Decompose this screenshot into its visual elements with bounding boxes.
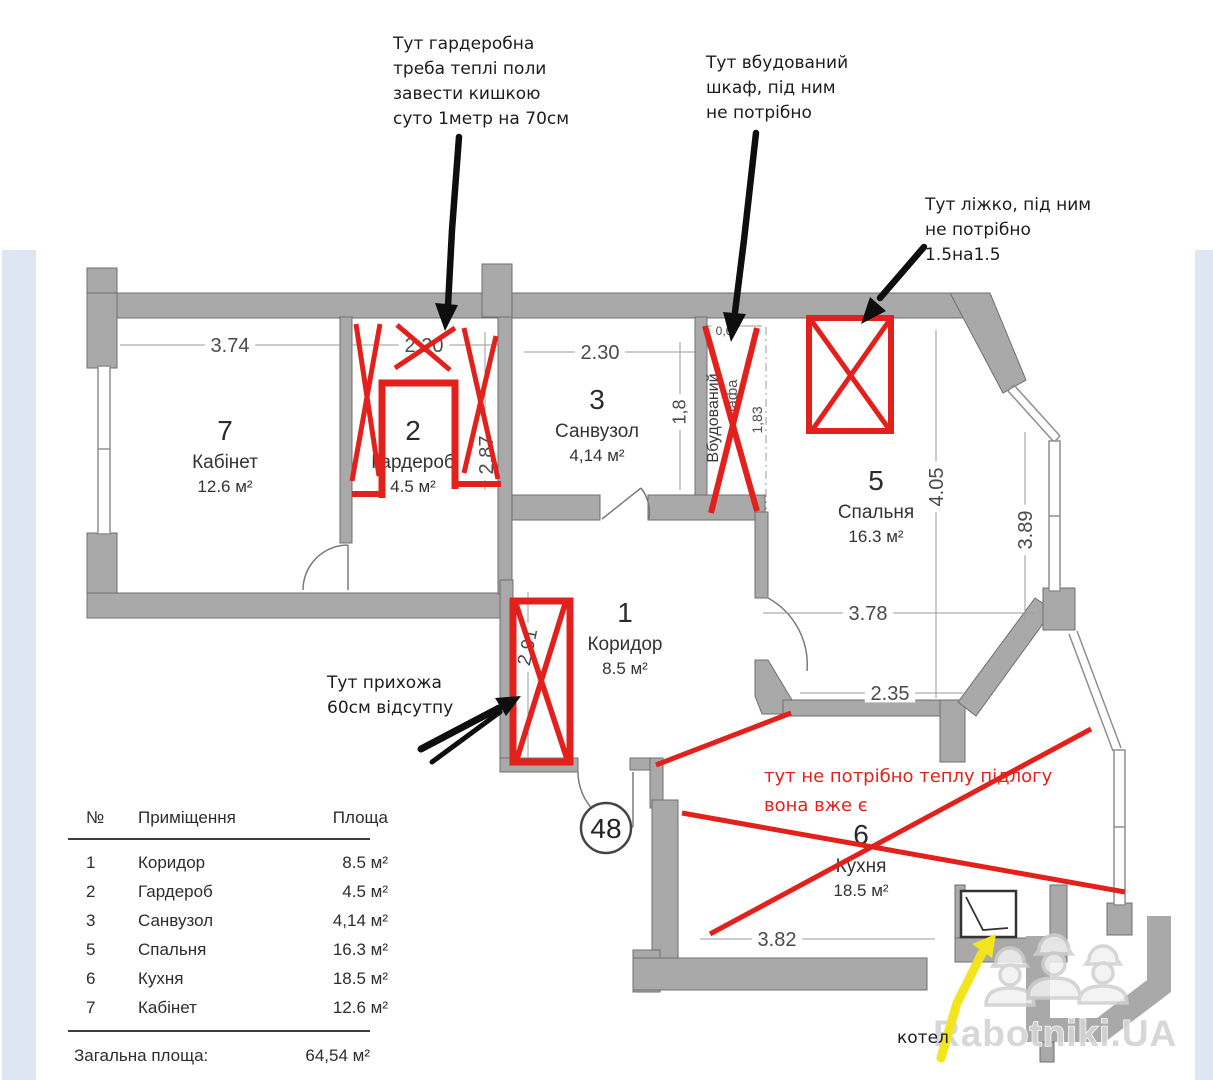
table-cell: 8.5 м² xyxy=(298,853,388,873)
table-cell: 4,14 м² xyxy=(298,911,388,931)
dimension-label: 2.35 xyxy=(871,683,910,705)
dimension-label: 3.89 xyxy=(1015,511,1037,550)
room-name: Коридор xyxy=(587,634,662,655)
total-value: 64,54 м² xyxy=(260,1046,370,1066)
table-cell: Спальня xyxy=(138,940,298,960)
table-cell: Коридор xyxy=(138,853,298,873)
doors-layer xyxy=(303,488,807,827)
header-number: № xyxy=(86,808,138,828)
room-name: Кабінет xyxy=(192,452,258,473)
table-header: № Приміщення Площа xyxy=(68,806,370,838)
note-builtin-closet: Тут вбудований шкаф, під ним не потрібно xyxy=(706,51,848,126)
table-cell: 3 xyxy=(86,911,138,931)
room-name: Санвузол xyxy=(555,421,639,442)
table-cell: 1 xyxy=(86,853,138,873)
black-arrow-bed xyxy=(880,247,924,298)
table-cell: Санвузол xyxy=(138,911,298,931)
dimension-label: 1,83 xyxy=(749,406,765,433)
table-cell: 18.5 м² xyxy=(298,969,388,989)
table-cell: Гардероб xyxy=(138,882,298,902)
table-cell: 7 xyxy=(86,998,138,1018)
note-line: 60см відсутпу xyxy=(327,696,453,721)
note-line: завести кишкою xyxy=(393,82,569,107)
apartment-number: 48 xyxy=(590,813,621,844)
annotated-floorplan: 3.742.202.302.871,81,830,64.053.893.782.… xyxy=(0,0,1213,1080)
note-line: не потрібно xyxy=(925,218,1091,243)
table-cell: Кабінет xyxy=(138,998,298,1018)
red-kitchen-cross-1 xyxy=(710,729,1091,934)
note-line: суто 1метр на 70см xyxy=(393,107,569,132)
dimension-label: 4.05 xyxy=(926,468,948,507)
room-number: 3 xyxy=(589,384,605,415)
table-body: 1Коридор8.5 м²2Гардероб4.5 м²3Санвузол4,… xyxy=(68,838,370,1032)
room-area: 16.3 м² xyxy=(848,527,903,546)
table-row: 6Кухня18.5 м² xyxy=(68,964,370,993)
door-office xyxy=(303,545,348,590)
red-kitchen-cross-2 xyxy=(682,813,1125,892)
door-bedroom xyxy=(768,598,807,671)
table-cell: Кухня xyxy=(138,969,298,989)
room-name: Кухня xyxy=(836,856,887,877)
dimension-label: 3.74 xyxy=(211,335,250,357)
room-number: 7 xyxy=(217,415,233,446)
table-row: 5Спальня16.3 м² xyxy=(68,935,370,964)
note-line: вона вже є xyxy=(764,791,1052,820)
table-row: 1Коридор8.5 м² xyxy=(68,848,370,877)
table-row: 7Кабінет12.6 м² xyxy=(68,993,370,1022)
room-area: 18.5 м² xyxy=(833,881,888,900)
window-office xyxy=(98,366,110,534)
table-row: 3Санвузол4,14 м² xyxy=(68,906,370,935)
room-area: 8.5 м² xyxy=(602,659,648,678)
note-line: Тут гардеробна xyxy=(393,32,569,57)
watermark-text: Rabotniki.UA xyxy=(933,1013,1177,1054)
note-line: треба теплі поли xyxy=(393,57,569,82)
black-arrow-wardrobe xyxy=(448,137,459,306)
total-label: Загальна площа: xyxy=(74,1046,260,1066)
note-line: тут не потрібно теплу підлогу xyxy=(764,762,1052,791)
note-line: не потрібно xyxy=(706,101,848,126)
room-area: 4,14 м² xyxy=(569,446,624,465)
room-area: 12.6 м² xyxy=(197,477,252,496)
note-hallway: Тут прихожа 60см відсутпу xyxy=(327,671,453,721)
room-area: 4.5 м² xyxy=(390,477,436,496)
room-number: 1 xyxy=(617,597,633,628)
header-area: Площа xyxy=(298,808,388,828)
note-bed: Тут ліжко, під ним не потрібно 1.5на1.5 xyxy=(925,193,1091,268)
table-row: 2Гардероб4.5 м² xyxy=(68,877,370,906)
table-cell: 6 xyxy=(86,969,138,989)
room-name: Спальня xyxy=(838,502,914,523)
note-kitchen-heating: тут не потрібно теплу підлогу вона вже є xyxy=(764,762,1052,820)
table-cell: 12.6 м² xyxy=(298,998,388,1018)
dimension-label: 1,8 xyxy=(669,399,689,424)
note-line: 1.5на1.5 xyxy=(925,243,1091,268)
dimension-label: 2.30 xyxy=(581,342,620,364)
table-cell: 2 xyxy=(86,882,138,902)
table-total-row: Загальна площа: 64,54 м² xyxy=(68,1032,370,1066)
boiler-symbol xyxy=(961,891,1016,937)
header-room: Приміщення xyxy=(138,808,298,828)
room-number: 2 xyxy=(405,415,421,446)
note-line: Тут вбудований xyxy=(706,51,848,76)
note-line: Тут прихожа xyxy=(327,671,453,696)
note-wardrobe-heating: Тут гардеробна треба теплі поли завести … xyxy=(393,32,569,132)
red-markup-layer xyxy=(352,318,1125,934)
room-number: 5 xyxy=(868,465,884,496)
note-line: шкаф, під ним xyxy=(706,76,848,101)
black-arrow-closet xyxy=(735,133,756,312)
boiler-label: котел xyxy=(897,1026,949,1051)
dimension-label: 3.82 xyxy=(758,929,797,951)
table-cell: 4.5 м² xyxy=(298,882,388,902)
apartment-number-badge: 48 xyxy=(581,803,631,853)
note-line: Тут ліжко, під ним xyxy=(925,193,1091,218)
table-cell: 16.3 м² xyxy=(298,940,388,960)
room-area-table: № Приміщення Площа 1Коридор8.5 м²2Гардер… xyxy=(68,806,370,1066)
dimension-label: 3.78 xyxy=(849,603,888,625)
table-cell: 5 xyxy=(86,940,138,960)
